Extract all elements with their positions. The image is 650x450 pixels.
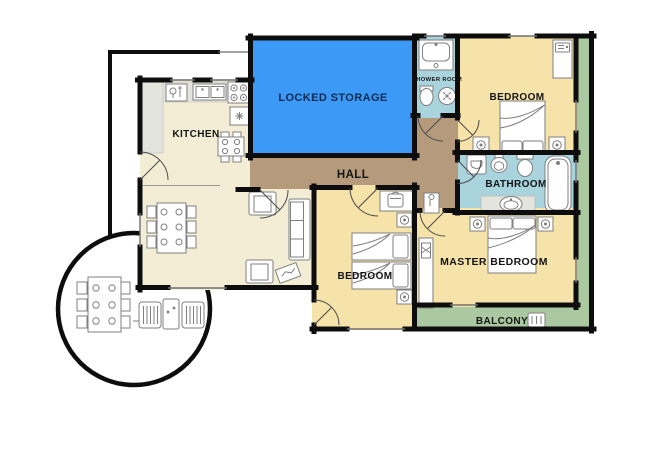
bedroom-top-label: BEDROOM: [489, 92, 544, 103]
lounge-chair-icon: [139, 302, 161, 328]
double-bed-icon: [500, 101, 545, 153]
patio-side-table-icon: [163, 299, 179, 329]
master-bedroom-label: MASTER BEDROOM: [440, 256, 548, 268]
balcony-chair-icon: [528, 313, 545, 327]
bathtub-icon: [545, 156, 571, 213]
lounge-chair-icon: [182, 302, 204, 328]
washbasin-icon: [419, 40, 453, 70]
armchair-icon: [246, 260, 273, 283]
dining-table-icon: [147, 203, 196, 253]
nightstand-lamp-icon: [397, 213, 412, 227]
sofa-icon: [289, 199, 310, 260]
hall-label: HALL: [337, 169, 369, 181]
locked-storage-label: LOCKED STORAGE: [278, 92, 387, 104]
hall-cabinet-icon: [424, 193, 439, 213]
toilet-icon: [517, 153, 533, 177]
shower-icon: [439, 88, 456, 105]
nightstand-lamp-icon: [397, 290, 412, 304]
single-bed-icon: [352, 233, 411, 260]
kitchen-sink-icon: [193, 84, 226, 100]
cooker-hood-icon: [230, 107, 249, 125]
nightstand-lamp-icon: [538, 217, 553, 231]
washing-machine-icon: [467, 155, 486, 174]
bedroom-middle-label: BEDROOM: [337, 271, 392, 282]
floor-plan-svg: KITCHEN LOCKED STORAGE SHOWER ROOM BEDRO…: [0, 0, 650, 450]
vanity-basin-icon: [481, 196, 535, 212]
floor-plan: KITCHEN LOCKED STORAGE SHOWER ROOM BEDRO…: [0, 0, 650, 450]
stove-icon: [228, 82, 249, 103]
desk-icon: [553, 40, 572, 78]
bathroom-label: BATHROOM: [485, 179, 546, 190]
wardrobe-icon: [380, 191, 413, 211]
glass-cabinet-icon: [166, 84, 187, 101]
nightstand-lamp-icon: [470, 217, 485, 231]
armchair-icon: [249, 192, 276, 215]
shower-room-label: SHOWER ROOM: [412, 77, 462, 83]
toilet-icon: [420, 86, 433, 106]
kitchen-label: KITCHEN: [172, 129, 219, 140]
wardrobe-icon: [419, 238, 433, 308]
balcony-label: BALCONY: [476, 316, 528, 327]
